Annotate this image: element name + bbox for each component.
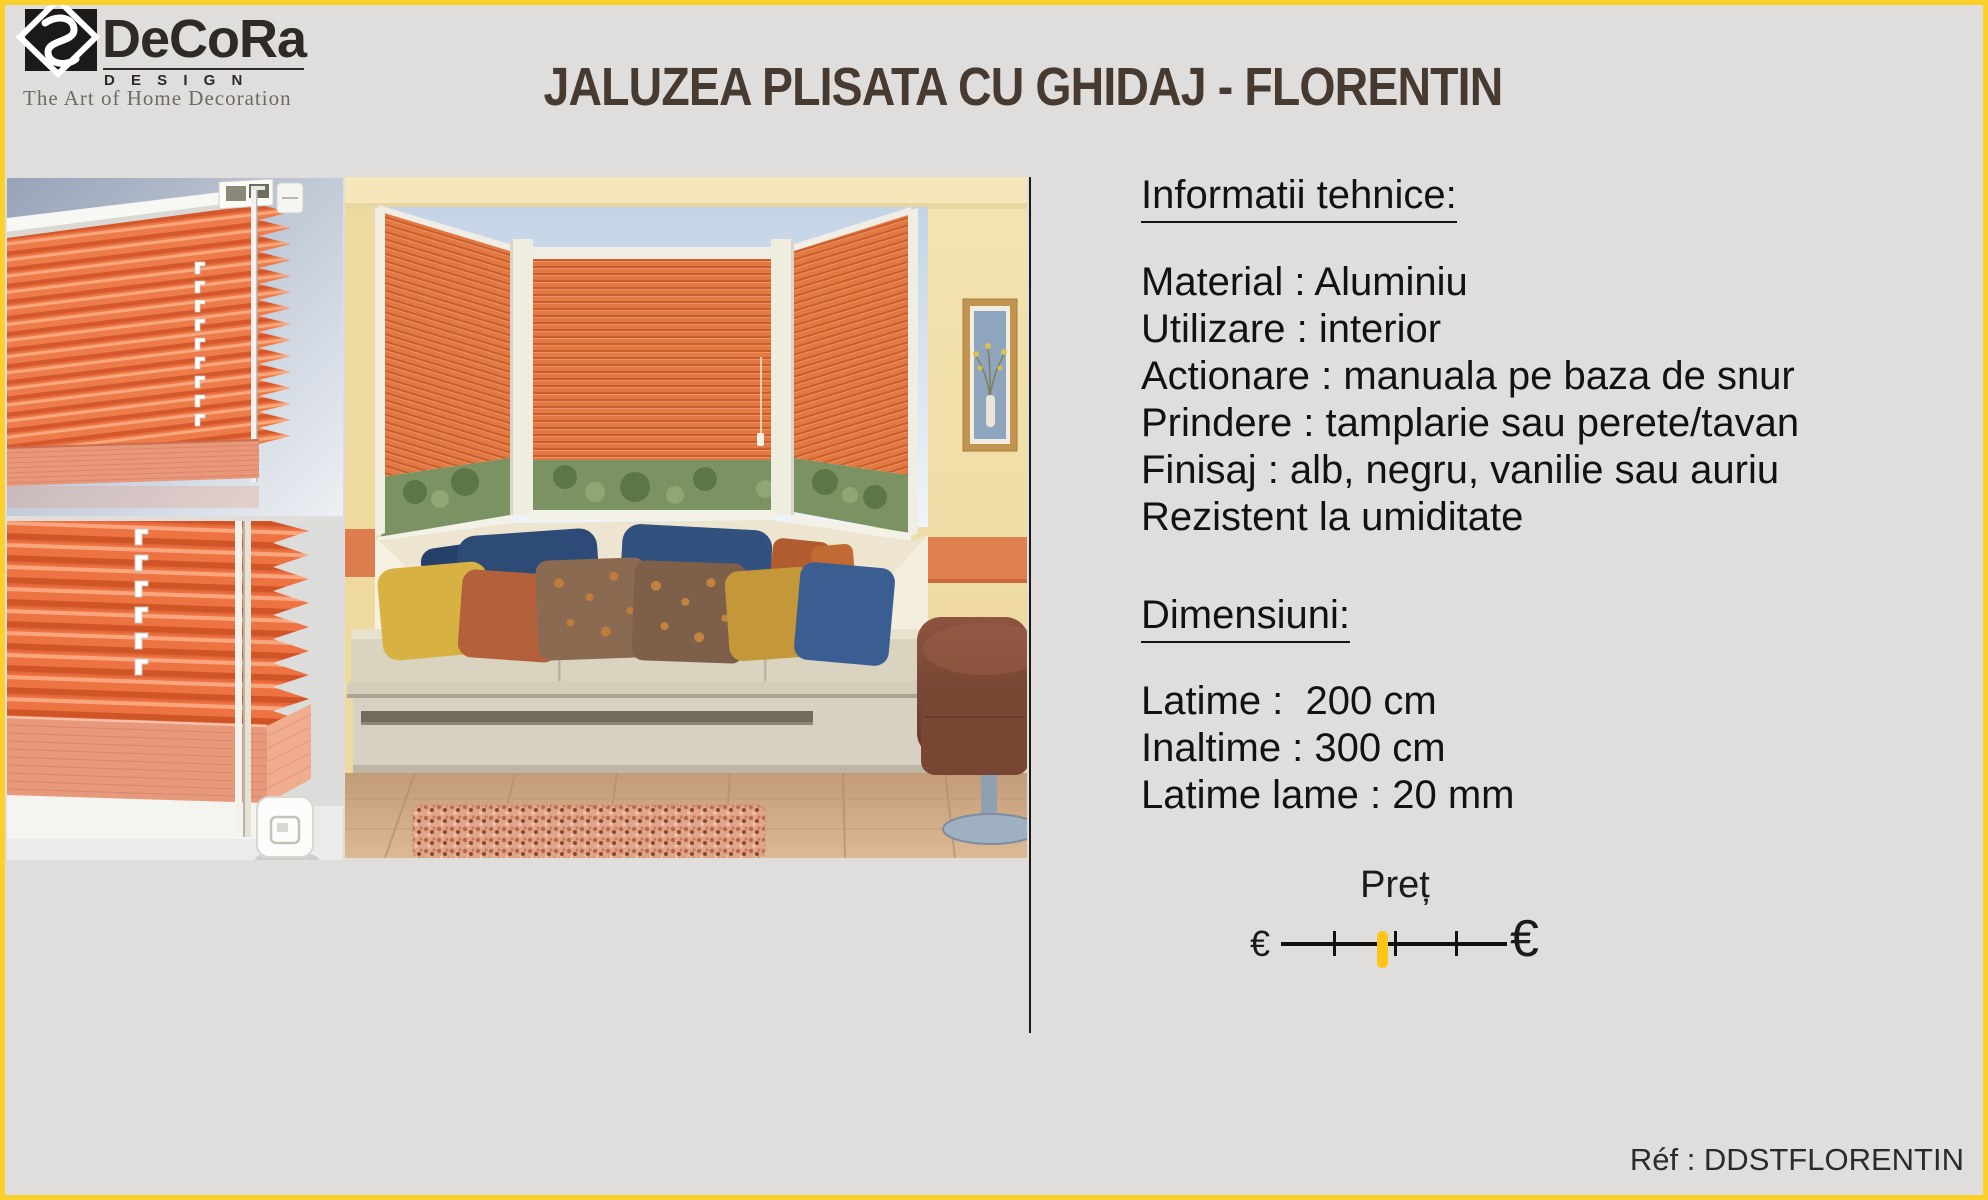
- brand-name: DeCoRa: [102, 12, 306, 66]
- tech-info-line: Finisaj : alb, negru, vanilie sau auriu: [1141, 447, 1799, 494]
- dimensions-heading: Dimensiuni:: [1141, 592, 1350, 643]
- section-divider: [1029, 177, 1031, 1033]
- tech-info-line: Material : Aluminiu: [1141, 259, 1799, 306]
- price-marker: [1377, 931, 1388, 968]
- tech-info-line: Utilizare : interior: [1141, 306, 1799, 353]
- product-photo-top: [7, 178, 343, 516]
- price-scale-tick: [1455, 931, 1458, 956]
- dimensions-list: Latime : 200 cm Inaltime : 300 cm Latime…: [1141, 678, 1514, 819]
- tech-info-heading: Informatii tehnice:: [1141, 172, 1457, 223]
- brand-logo: DeCoRa D E S I G N The Art of Home Decor…: [22, 8, 322, 108]
- product-photo-bottom: [7, 521, 343, 860]
- euro-min-symbol: €: [1250, 926, 1270, 962]
- page-title: JALUZEA PLISATA CU GHIDAJ - FLORENTIN: [544, 60, 1447, 114]
- price-scale-tick: [1394, 931, 1397, 956]
- brand-tagline: The Art of Home Decoration: [23, 86, 292, 111]
- price-scale-tick: [1333, 931, 1336, 956]
- dimension-line: Latime : 200 cm: [1141, 678, 1514, 725]
- logo-mark-icon: [25, 9, 103, 75]
- tech-info-line: Actionare : manuala pe baza de snur: [1141, 353, 1799, 400]
- room-photo: [345, 177, 1027, 858]
- price-scale: € €: [1240, 900, 1570, 980]
- tech-info-line: Rezistent la umiditate: [1141, 494, 1799, 541]
- dimension-line: Latime lame : 20 mm: [1141, 772, 1514, 819]
- brand-rule: [103, 68, 304, 70]
- tech-info-line: Prindere : tamplarie sau perete/tavan: [1141, 400, 1799, 447]
- tech-info-list: Material : Aluminiu Utilizare : interior…: [1141, 259, 1799, 541]
- reference-label: Réf : DDSTFLORENTIN: [1630, 1142, 1964, 1178]
- euro-max-symbol: €: [1510, 913, 1539, 965]
- dimension-line: Inaltime : 300 cm: [1141, 725, 1514, 772]
